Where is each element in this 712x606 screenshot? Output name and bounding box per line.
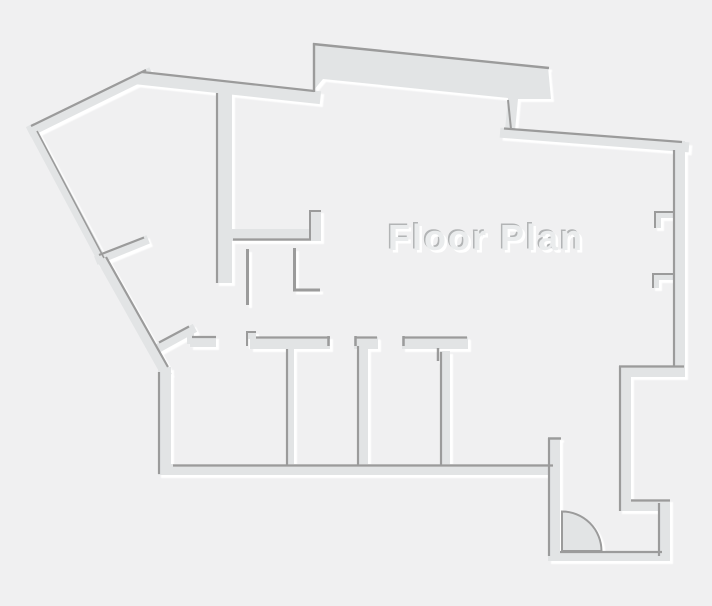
floorplan-title: Floor Plan — [388, 217, 584, 258]
room2-top-wall-piece — [250, 337, 330, 349]
spur-partition-wall — [100, 241, 144, 259]
room4-top-wall-piece — [402, 337, 468, 349]
title-group: Floor Plan Floor Plan Floor Plan — [386, 216, 586, 261]
west-upper-diagonal-wall — [32, 129, 102, 260]
floor-plan-canvas: Floor Plan Floor Plan Floor Plan — [0, 0, 712, 606]
southwest-wall-edge — [106, 257, 168, 367]
floor-plan-svg: Floor Plan Floor Plan Floor Plan — [0, 0, 712, 606]
entry-door-swing — [562, 512, 602, 552]
northwest-diagonal-wall — [33, 74, 147, 130]
walls-layer — [31, 43, 685, 561]
southwest-diagonal-wall — [101, 258, 165, 372]
interior-vertical-wall-a — [216, 88, 232, 283]
west-upper-wall-edge — [37, 131, 104, 258]
northwest-wall-edge — [31, 70, 146, 126]
